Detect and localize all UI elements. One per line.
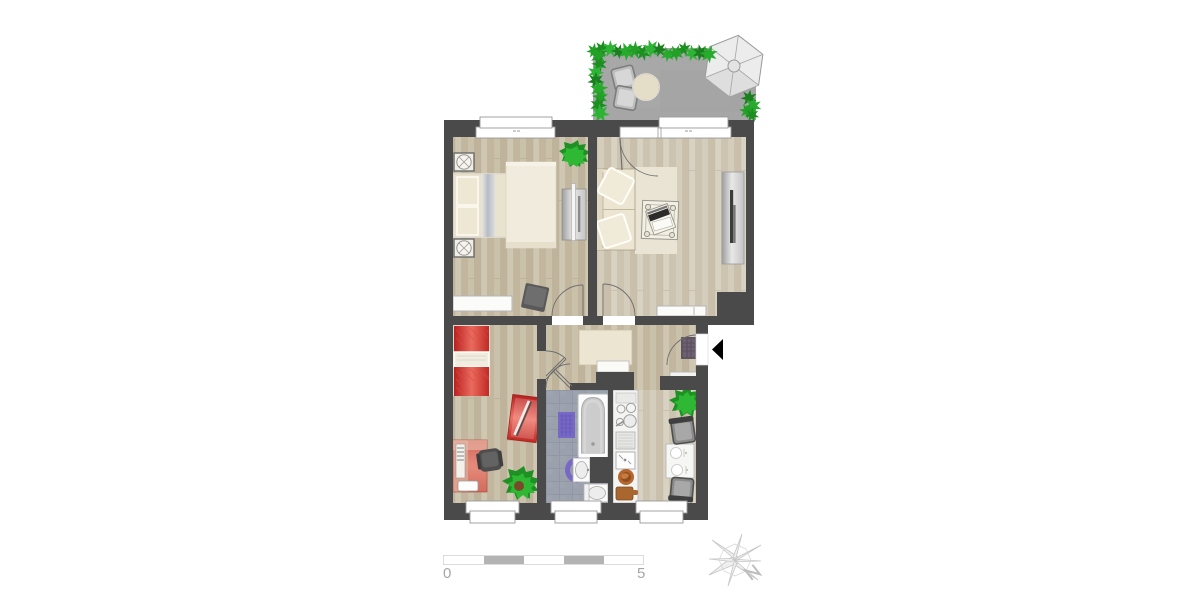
svg-text:0: 0 xyxy=(443,565,451,582)
svg-text:5: 5 xyxy=(637,565,645,582)
